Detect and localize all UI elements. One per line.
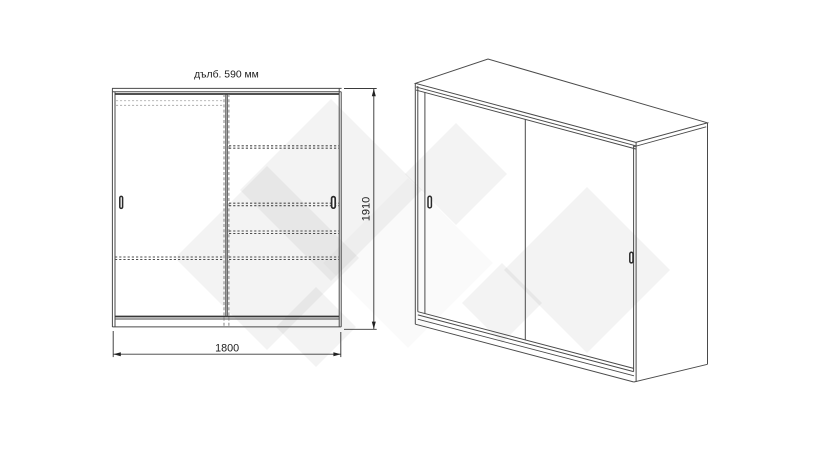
svg-text:дълб. 590 мм: дълб. 590 мм: [194, 69, 259, 81]
svg-text:1800: 1800: [215, 343, 239, 355]
svg-text:1910: 1910: [360, 197, 372, 221]
